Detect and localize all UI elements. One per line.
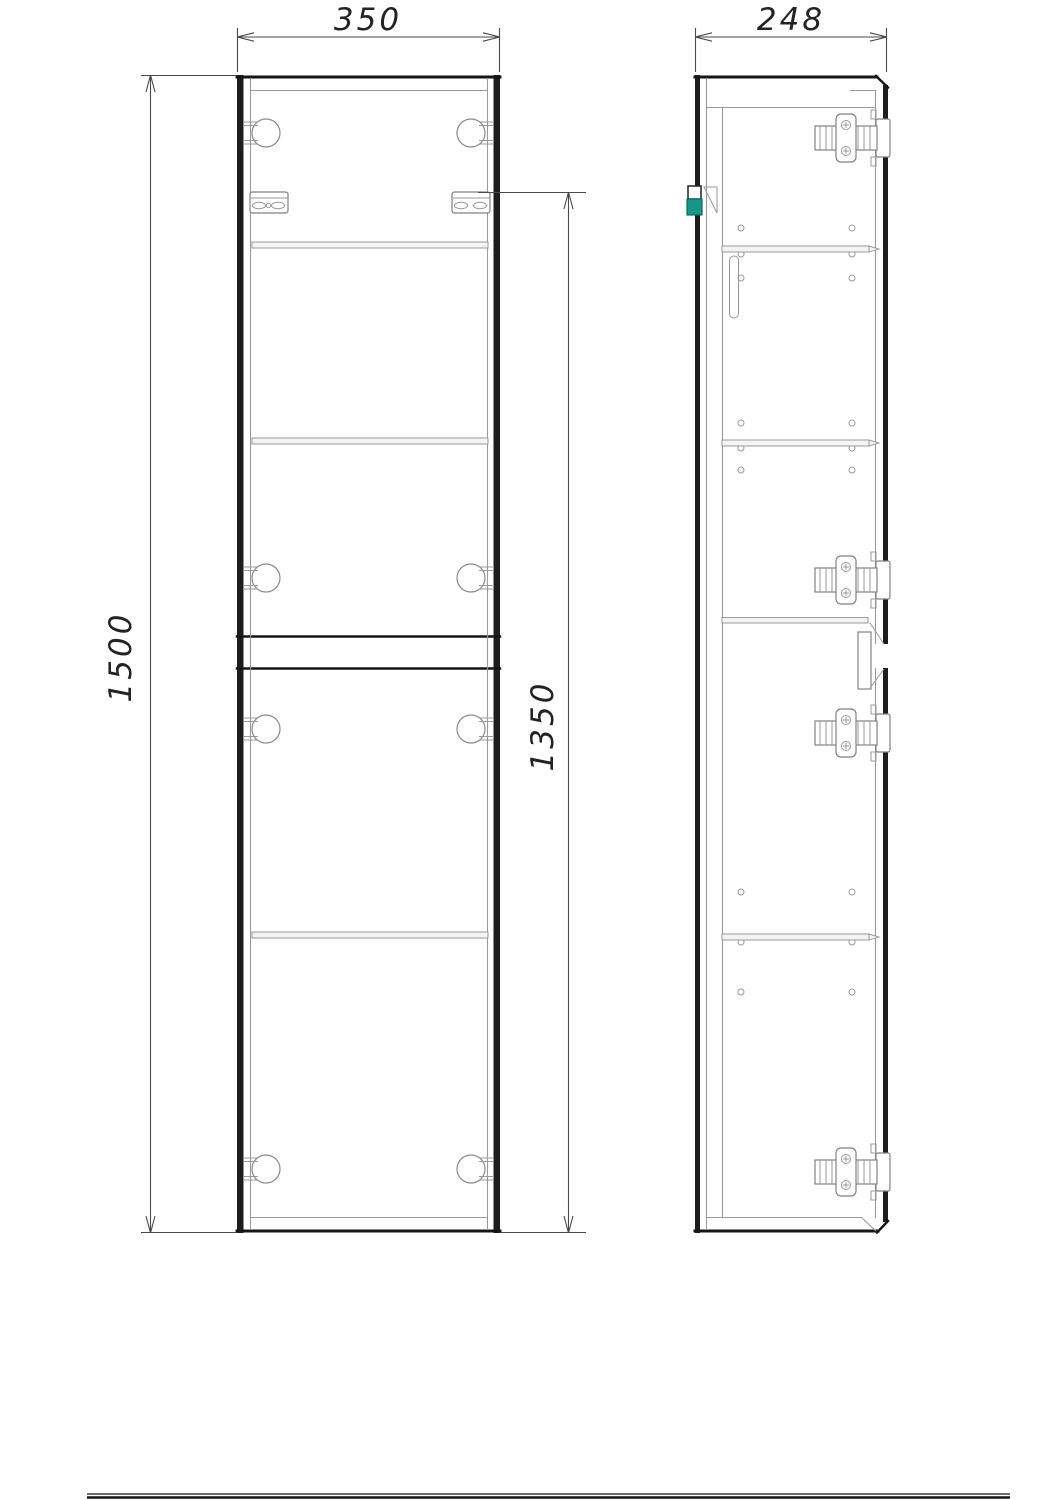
side-top-chamfer [876,76,888,88]
hinge-cup-icon [457,715,494,743]
side-view [687,75,890,1233]
side-shelf-3 [722,934,879,940]
shelf-pin-holes [738,989,855,995]
side-middle-partition [722,618,868,624]
hinge-icon [815,110,890,166]
shelf-pin-holes [738,467,855,473]
side-back-panel [695,75,700,1233]
sheet-border-bottom [87,1494,1010,1498]
front-middle-rail [237,637,500,669]
dimension-depth-248: 248 [695,2,887,72]
hinge-icon [815,1144,890,1200]
hinge-cup-icon [243,1155,280,1183]
side-door-gap-lines [870,623,884,688]
bracket-teal-lever [687,199,702,215]
hinge-cup-icon [457,564,494,592]
front-view [237,75,500,1233]
dim-depth-label: 248 [757,2,825,38]
hinge-icon [815,705,890,761]
hinge-cup-icon [243,119,280,147]
hanging-bracket-icon [452,192,490,213]
front-left-side-panel [237,75,244,1233]
hanging-bracket-icon [250,192,288,213]
hinge-cup-icon [457,119,494,147]
cabinet-technical-drawing: 350 248 1500 1350 [0,0,1060,1500]
side-bottom-chamfer [877,1221,888,1233]
dim-height-label: 1500 [103,612,139,703]
hinge-cup-icon [457,1155,494,1183]
shelf-pin-holes [738,275,855,281]
side-bottom-panel [706,1218,876,1232]
front-door-edges [250,78,488,1230]
dim-rail-label: 1350 [525,681,561,772]
side-upper-door [883,85,888,644]
dimension-height-1500: 1500 [103,75,237,1233]
dimension-width-350: 350 [237,2,500,72]
side-top-panel [706,91,876,108]
front-middle-rail-edges [251,637,488,668]
shelf-pin-holes [738,225,855,231]
hinge-cup-icon [243,715,280,743]
side-shelf-1 [722,246,879,252]
dim-width-label: 350 [334,2,402,38]
shelf-pin-holes [738,420,855,426]
drawing-sheet: 350 248 1500 1350 [0,0,1060,1500]
front-shelf-1 [252,242,488,248]
front-shelf-3 [252,932,488,938]
front-right-side-panel [494,75,501,1233]
shelf-pin-holes [738,889,855,895]
side-middle-rail [858,632,871,689]
hinge-icon [815,552,890,608]
front-shelf-2 [252,438,488,444]
side-shelf-2 [722,440,879,446]
hinge-cup-icon [243,564,280,592]
